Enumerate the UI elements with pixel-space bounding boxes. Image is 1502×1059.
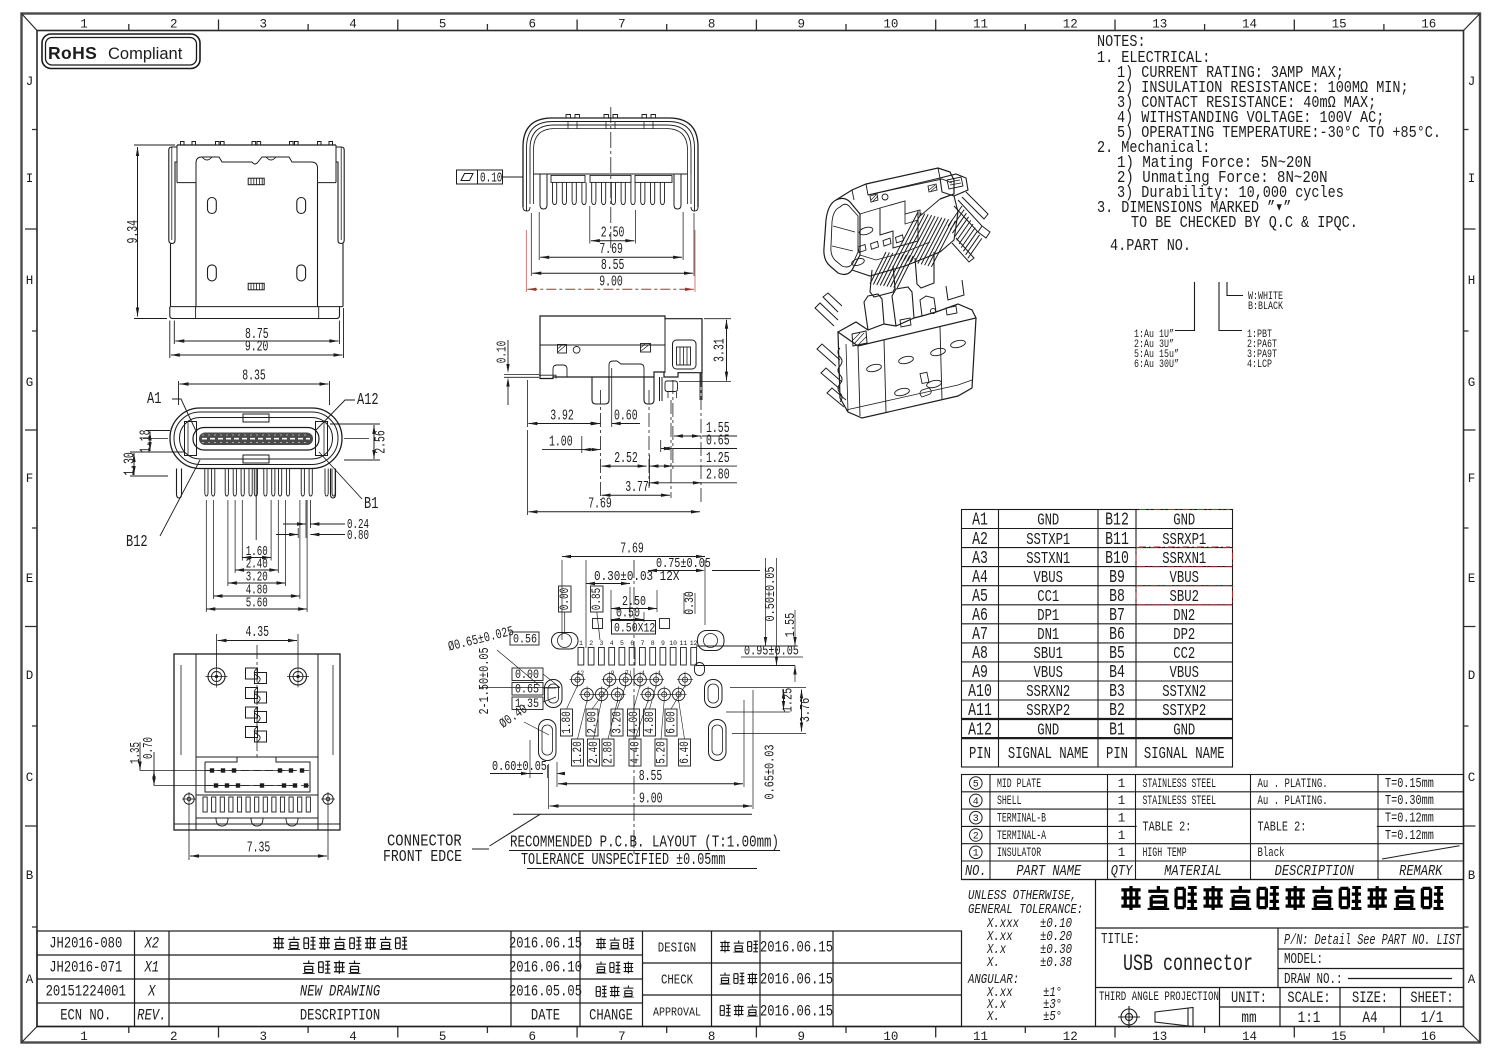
- svg-text:SBU1: SBU1: [1034, 645, 1063, 664]
- svg-text:SIZE:: SIZE:: [1352, 989, 1388, 1007]
- svg-text:4.PART NO.: 4.PART NO.: [1110, 237, 1191, 256]
- svg-text:T=0.15mm: T=0.15mm: [1385, 777, 1434, 792]
- svg-text:9: 9: [611, 670, 615, 677]
- svg-text:9.00: 9.00: [639, 790, 663, 807]
- svg-text:USB connector: USB connector: [1123, 951, 1253, 977]
- svg-text:Au . PLATING.: Au . PLATING.: [1258, 793, 1328, 808]
- svg-text:JH2016-080: JH2016-080: [49, 935, 122, 953]
- svg-text:1: 1: [1118, 777, 1126, 791]
- svg-text:4: 4: [610, 640, 614, 647]
- svg-text:0.50X12: 0.50X12: [614, 621, 655, 636]
- svg-text:SIGNAL NAME: SIGNAL NAME: [1008, 745, 1089, 764]
- svg-text:±0.38: ±0.38: [1040, 955, 1072, 971]
- svg-text:PIN: PIN: [1106, 745, 1128, 764]
- svg-text:3.92: 3.92: [550, 407, 574, 424]
- svg-text:A5: A5: [972, 587, 988, 607]
- svg-text:3: 3: [599, 640, 603, 647]
- svg-text:3.76: 3.76: [799, 698, 814, 722]
- svg-text:0.00: 0.00: [515, 667, 539, 682]
- svg-text:1: 1: [579, 640, 583, 647]
- svg-text:1.30: 1.30: [121, 452, 138, 476]
- svg-text:STAINLESS STEEL: STAINLESS STEEL: [1143, 793, 1217, 808]
- svg-text:7.35: 7.35: [247, 840, 271, 857]
- svg-text:J: J: [26, 75, 34, 89]
- svg-text:A7: A7: [972, 625, 988, 645]
- svg-text:9: 9: [661, 640, 665, 647]
- svg-text:9.34: 9.34: [125, 220, 142, 244]
- svg-text:TERMINAL-A: TERMINAL-A: [997, 828, 1046, 843]
- svg-text:DESCRIPTION: DESCRIPTION: [300, 1007, 380, 1025]
- svg-text:2.80: 2.80: [706, 467, 730, 484]
- svg-text:A1: A1: [147, 389, 161, 408]
- svg-text:7|: 7|: [625, 670, 632, 677]
- svg-text:SSTXN1: SSTXN1: [1026, 550, 1070, 569]
- svg-text:7.69: 7.69: [588, 496, 612, 513]
- svg-text:HIGH TEMP: HIGH TEMP: [1143, 845, 1187, 860]
- svg-text:NO.: NO.: [965, 863, 987, 880]
- svg-text:NEW DRAWING: NEW DRAWING: [300, 983, 381, 1001]
- svg-text:INSULATOR: INSULATOR: [997, 845, 1041, 860]
- svg-text:CHANGE: CHANGE: [589, 1007, 633, 1025]
- svg-text:4: 4: [349, 1030, 357, 1044]
- svg-text:B12: B12: [1105, 511, 1129, 531]
- svg-text:mm: mm: [1241, 1009, 1256, 1027]
- svg-text:9: 9: [797, 18, 805, 32]
- svg-text:X1: X1: [144, 959, 159, 977]
- svg-text:0.60±0.05: 0.60±0.05: [492, 760, 547, 775]
- svg-text:SBU2: SBU2: [1170, 588, 1199, 607]
- svg-text:B6: B6: [1109, 625, 1125, 645]
- svg-text:0.10: 0.10: [496, 341, 511, 363]
- svg-text:8.55: 8.55: [639, 768, 663, 785]
- svg-text:X.: X.: [986, 1009, 1000, 1025]
- svg-text:B1: B1: [364, 494, 378, 513]
- svg-text:B1: B1: [1109, 720, 1125, 740]
- svg-text:2.80: 2.80: [601, 741, 615, 763]
- svg-text:14: 14: [1242, 1030, 1257, 1044]
- svg-text:SSTXP1: SSTXP1: [1026, 531, 1070, 550]
- svg-text:X: X: [147, 983, 156, 1001]
- svg-text:A10: A10: [968, 682, 992, 702]
- svg-text:REV.: REV.: [137, 1007, 166, 1025]
- svg-text:T=0.30mm: T=0.30mm: [1385, 794, 1434, 809]
- svg-text:0.50: 0.50: [616, 606, 640, 622]
- svg-text:6: 6: [630, 640, 634, 647]
- svg-text:VBUS: VBUS: [1170, 664, 1199, 683]
- svg-text:SSTXP2: SSTXP2: [1162, 702, 1206, 721]
- svg-text:2: 2: [589, 640, 593, 647]
- svg-text:0.65±0.03: 0.65±0.03: [764, 745, 779, 800]
- svg-text:4: 4: [641, 670, 645, 677]
- svg-text:1:1: 1:1: [1298, 1009, 1321, 1027]
- svg-text:A4: A4: [1362, 1009, 1377, 1027]
- svg-text:6: 6: [528, 1030, 536, 1044]
- svg-text:6.00: 6.00: [664, 711, 678, 733]
- svg-text:DP2: DP2: [1173, 626, 1195, 645]
- svg-text:E: E: [26, 572, 34, 586]
- svg-text:2016.06.15: 2016.06.15: [509, 935, 582, 953]
- svg-text:B:BLACK: B:BLACK: [1248, 301, 1283, 313]
- svg-text:Compliant: Compliant: [108, 45, 183, 63]
- svg-text:VBUS: VBUS: [1170, 569, 1199, 588]
- svg-text:GND: GND: [1037, 512, 1059, 531]
- svg-text:B10: B10: [1105, 549, 1129, 569]
- svg-text:1.55: 1.55: [784, 613, 799, 637]
- svg-text:13: 13: [1152, 1030, 1167, 1044]
- svg-text:B: B: [26, 869, 34, 883]
- svg-text:0.65: 0.65: [515, 682, 539, 697]
- svg-text:2.50: 2.50: [601, 225, 625, 242]
- svg-text:SHEET:: SHEET:: [1410, 989, 1453, 1007]
- svg-text:C: C: [1468, 771, 1476, 785]
- svg-text:0.80: 0.80: [347, 528, 369, 544]
- svg-text:A3: A3: [972, 549, 988, 569]
- svg-text:GND: GND: [1173, 721, 1195, 740]
- svg-text:TABLE 2:: TABLE 2:: [1143, 820, 1192, 835]
- svg-text:7.69: 7.69: [599, 241, 623, 258]
- svg-text:2.52: 2.52: [614, 450, 638, 467]
- svg-text:4.80: 4.80: [643, 711, 657, 733]
- svg-text:8.35: 8.35: [242, 368, 266, 385]
- svg-text:B2: B2: [1109, 701, 1125, 721]
- svg-text:CHECK: CHECK: [661, 973, 693, 989]
- svg-text:1/1: 1/1: [1421, 1009, 1444, 1027]
- svg-text:1: 1: [1118, 794, 1126, 808]
- svg-text:12: 12: [1063, 18, 1078, 32]
- svg-text:16: 16: [1421, 18, 1436, 32]
- svg-text:2016.06.15: 2016.06.15: [760, 939, 833, 957]
- svg-text:4.00: 4.00: [627, 711, 641, 733]
- svg-text:2: 2: [170, 1030, 178, 1044]
- svg-text:0.60: 0.60: [614, 407, 638, 424]
- svg-text:A12: A12: [968, 720, 992, 740]
- svg-text:APPROVAL: APPROVAL: [653, 1006, 701, 1020]
- svg-text:UNIT:: UNIT:: [1231, 989, 1267, 1007]
- svg-text:15: 15: [1332, 18, 1347, 32]
- svg-text:SSRXP2: SSRXP2: [1026, 702, 1070, 721]
- svg-text:12: 12: [577, 670, 585, 677]
- svg-text:4.35: 4.35: [245, 624, 269, 641]
- svg-text:JH2016-071: JH2016-071: [49, 959, 122, 977]
- svg-text:10: 10: [883, 1030, 898, 1044]
- svg-text:2016.05.05: 2016.05.05: [509, 983, 582, 1001]
- svg-text:GND: GND: [1173, 512, 1195, 531]
- svg-text:H: H: [1468, 274, 1476, 288]
- svg-text:C: C: [26, 771, 34, 785]
- svg-text:5: 5: [973, 780, 979, 791]
- svg-text:8.55: 8.55: [601, 257, 625, 274]
- svg-text:A12: A12: [357, 390, 379, 409]
- svg-text:DRAW NO.:: DRAW NO.:: [1284, 972, 1343, 988]
- svg-text:B5: B5: [1109, 644, 1125, 664]
- svg-text:A: A: [26, 973, 34, 987]
- svg-text:T=0.12mm: T=0.12mm: [1385, 829, 1434, 844]
- svg-text:0.85: 0.85: [590, 588, 604, 610]
- svg-text:9.00: 9.00: [599, 274, 623, 291]
- svg-text:THIRD ANGLE PROJECTION: THIRD ANGLE PROJECTION: [1099, 990, 1219, 1004]
- svg-text:DN2: DN2: [1173, 607, 1195, 626]
- svg-text:8: 8: [708, 18, 716, 32]
- svg-text:4: 4: [973, 797, 979, 808]
- svg-text:A8: A8: [972, 644, 988, 664]
- svg-text:B12: B12: [126, 532, 148, 551]
- svg-text:VBUS: VBUS: [1034, 664, 1063, 683]
- svg-text:TERMINAL-B: TERMINAL-B: [997, 811, 1046, 826]
- svg-text:1: 1: [973, 849, 979, 860]
- svg-text:0.00: 0.00: [558, 588, 572, 610]
- svg-text:B11: B11: [1105, 530, 1129, 550]
- svg-text:1: 1: [1118, 812, 1126, 826]
- svg-text:7.69: 7.69: [620, 541, 644, 558]
- svg-text:E: E: [1468, 572, 1476, 586]
- svg-text:SSRXN2: SSRXN2: [1026, 683, 1070, 702]
- svg-text:CC2: CC2: [1173, 645, 1195, 664]
- svg-text:3: 3: [260, 18, 268, 32]
- svg-text:4: 4: [657, 670, 661, 677]
- svg-text:1.20: 1.20: [571, 741, 585, 763]
- svg-text:SIGNAL NAME: SIGNAL NAME: [1144, 745, 1225, 764]
- svg-text:8: 8: [651, 640, 655, 647]
- svg-text:10: 10: [883, 18, 898, 32]
- svg-text:B9: B9: [1109, 568, 1125, 588]
- svg-text:A4: A4: [972, 568, 988, 588]
- svg-text:SCALE:: SCALE:: [1287, 989, 1330, 1007]
- svg-text:1: 1: [80, 18, 88, 32]
- svg-text:QTY: QTY: [1111, 863, 1133, 880]
- svg-text:T=0.12mm: T=0.12mm: [1385, 812, 1434, 827]
- svg-text:A11: A11: [968, 701, 992, 721]
- svg-text:1.18: 1.18: [137, 429, 154, 453]
- svg-text:4.40: 4.40: [628, 741, 642, 763]
- svg-text:5.60: 5.60: [246, 596, 268, 612]
- svg-text:2: 2: [973, 831, 979, 842]
- svg-text:11: 11: [973, 18, 988, 32]
- svg-text:11: 11: [973, 1030, 988, 1044]
- svg-text:8: 8: [708, 1030, 716, 1044]
- svg-text:D: D: [26, 669, 34, 683]
- svg-text:A1: A1: [972, 511, 988, 531]
- svg-text:7: 7: [618, 1030, 626, 1044]
- svg-text:D: D: [1468, 669, 1476, 683]
- svg-text:B7: B7: [1109, 606, 1125, 626]
- svg-text:5.20: 5.20: [654, 741, 668, 763]
- svg-text:STAINLESS STEEL: STAINLESS STEEL: [1143, 776, 1217, 791]
- svg-text:1: 1: [1118, 846, 1126, 860]
- svg-text:1.25: 1.25: [706, 450, 730, 467]
- svg-text:SSTXN2: SSTXN2: [1162, 683, 1206, 702]
- svg-text:MATERIAL: MATERIAL: [1164, 863, 1222, 880]
- svg-text:6:Au 30U”: 6:Au 30U”: [1134, 359, 1179, 371]
- svg-text:B4: B4: [1109, 663, 1125, 683]
- svg-text:10: 10: [669, 640, 677, 647]
- svg-text:TITLE:: TITLE:: [1101, 932, 1140, 948]
- svg-text:5: 5: [620, 640, 624, 647]
- svg-text:5: 5: [439, 1030, 447, 1044]
- svg-text:2: 2: [170, 18, 178, 32]
- svg-text:GND: GND: [1037, 721, 1059, 740]
- svg-text:PART NAME: PART NAME: [1016, 863, 1082, 880]
- svg-text:SSRXN1: SSRXN1: [1162, 550, 1206, 569]
- svg-text:TO BE CHECKED BY Q.C & IPQC.: TO BE CHECKED BY Q.C & IPQC.: [1131, 214, 1358, 233]
- svg-text:2-1.50±0.05: 2-1.50±0.05: [478, 647, 493, 714]
- svg-text:2016.06.15: 2016.06.15: [760, 971, 833, 989]
- svg-text:1: 1: [80, 1030, 88, 1044]
- svg-text:6: 6: [528, 18, 536, 32]
- svg-text:2016.06.10: 2016.06.10: [509, 959, 582, 977]
- svg-text:DATE: DATE: [531, 1007, 560, 1025]
- svg-text:7: 7: [618, 18, 626, 32]
- svg-text:1: 1: [1118, 829, 1126, 843]
- svg-text:11: 11: [679, 640, 687, 647]
- svg-text:PIN: PIN: [969, 745, 991, 764]
- svg-text:1.00: 1.00: [549, 434, 573, 451]
- svg-text:DN1: DN1: [1037, 626, 1059, 645]
- svg-text:9: 9: [797, 1030, 805, 1044]
- svg-text:DESCRIPTION: DESCRIPTION: [1275, 863, 1354, 880]
- svg-text:B3: B3: [1109, 682, 1125, 702]
- svg-text:2.56: 2.56: [372, 430, 389, 454]
- svg-text:MODEL:: MODEL:: [1284, 952, 1323, 968]
- svg-text:A6: A6: [972, 606, 988, 626]
- svg-text:RoHS: RoHS: [48, 43, 97, 63]
- svg-text:3: 3: [973, 814, 979, 825]
- svg-text:FRONT EDCE: FRONT EDCE: [383, 848, 462, 867]
- svg-text:14: 14: [1242, 18, 1257, 32]
- svg-text:0.30±0.03 12X: 0.30±0.03 12X: [594, 570, 679, 585]
- svg-text:DESIGN: DESIGN: [658, 941, 696, 957]
- svg-text:1.80: 1.80: [560, 711, 574, 733]
- svg-text:1.35: 1.35: [128, 742, 144, 764]
- svg-text:X.: X.: [986, 955, 1000, 971]
- svg-text:13: 13: [1152, 18, 1167, 32]
- svg-text:X2: X2: [144, 935, 159, 953]
- svg-text:1.25: 1.25: [781, 688, 796, 712]
- svg-text:12: 12: [1063, 1030, 1078, 1044]
- svg-text:B8: B8: [1109, 587, 1125, 607]
- svg-text:G: G: [26, 376, 34, 390]
- svg-text:4: 4: [349, 18, 357, 32]
- svg-text:15: 15: [1332, 1030, 1347, 1044]
- svg-text:0.65: 0.65: [706, 432, 730, 449]
- svg-text:J: J: [1468, 75, 1476, 89]
- svg-text:20151224001: 20151224001: [46, 983, 126, 1001]
- svg-text:SHELL: SHELL: [997, 793, 1022, 808]
- svg-text:0.10: 0.10: [480, 172, 502, 187]
- svg-text:3.31: 3.31: [711, 338, 728, 362]
- svg-text:2.40: 2.40: [587, 741, 601, 763]
- svg-text:ECN NO.: ECN NO.: [60, 1007, 111, 1025]
- svg-text:MID PLATE: MID PLATE: [997, 776, 1041, 791]
- svg-text:9.20: 9.20: [245, 339, 269, 356]
- svg-text:Au . PLATING.: Au . PLATING.: [1258, 776, 1328, 791]
- svg-text:VBUS: VBUS: [1034, 569, 1063, 588]
- svg-text:H: H: [26, 274, 34, 288]
- svg-text:3: 3: [260, 1030, 268, 1044]
- svg-text:I: I: [1468, 172, 1476, 186]
- svg-text:16: 16: [1421, 1030, 1436, 1044]
- svg-text:7: 7: [640, 640, 644, 647]
- svg-text:P/N: Detail See PART NO. LIST: P/N: Detail See PART NO. LIST: [1284, 933, 1462, 949]
- svg-text:B: B: [1468, 869, 1476, 883]
- svg-text:0.56: 0.56: [513, 632, 537, 647]
- svg-text:6.40: 6.40: [678, 741, 692, 763]
- svg-text:F: F: [26, 472, 34, 486]
- svg-text:F: F: [1468, 472, 1476, 486]
- svg-text:4:LCP: 4:LCP: [1247, 359, 1272, 371]
- svg-text:2016.06.15: 2016.06.15: [760, 1003, 833, 1021]
- svg-text:A: A: [1468, 973, 1476, 987]
- svg-text:I: I: [26, 172, 34, 186]
- svg-text:Black: Black: [1258, 845, 1285, 860]
- svg-text:3.77: 3.77: [625, 479, 649, 496]
- svg-text:G: G: [1468, 376, 1476, 390]
- svg-text:REMARK: REMARK: [1399, 863, 1443, 880]
- svg-text:DP1: DP1: [1037, 607, 1059, 626]
- svg-text:A9: A9: [972, 663, 988, 683]
- svg-text:±5°: ±5°: [1043, 1009, 1062, 1025]
- svg-text:CC1: CC1: [1037, 588, 1059, 607]
- svg-text:5: 5: [439, 18, 447, 32]
- svg-text:TABLE 2:: TABLE 2:: [1258, 820, 1307, 835]
- svg-text:A2: A2: [972, 530, 988, 550]
- svg-text:TOLERANCE UNSPECIFIED ±0.05mm: TOLERANCE UNSPECIFIED ±0.05mm: [521, 850, 725, 869]
